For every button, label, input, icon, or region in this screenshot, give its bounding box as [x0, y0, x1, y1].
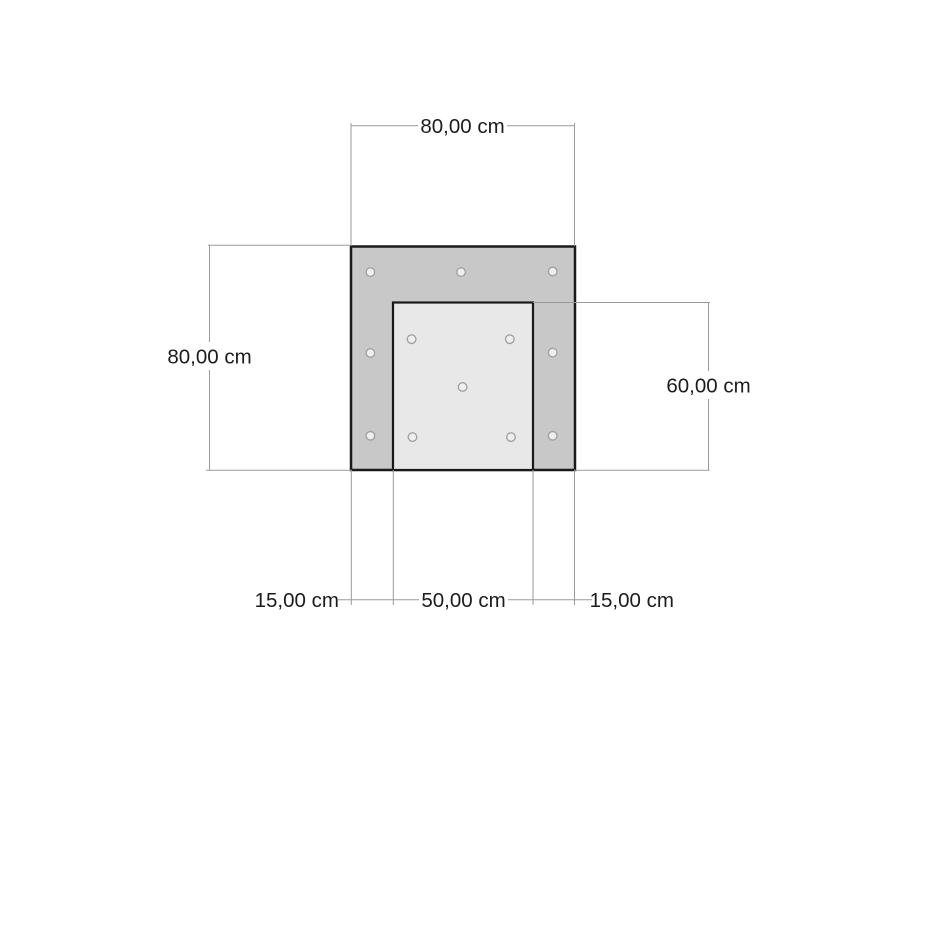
svg-text:15,00 cm: 15,00 cm	[590, 589, 674, 612]
svg-text:80,00 cm: 80,00 cm	[167, 346, 251, 369]
svg-text:80,00 cm: 80,00 cm	[420, 115, 504, 138]
svg-text:15,00 cm: 15,00 cm	[255, 589, 339, 612]
svg-text:50,00 cm: 50,00 cm	[421, 589, 505, 612]
svg-text:60,00 cm: 60,00 cm	[666, 375, 750, 398]
